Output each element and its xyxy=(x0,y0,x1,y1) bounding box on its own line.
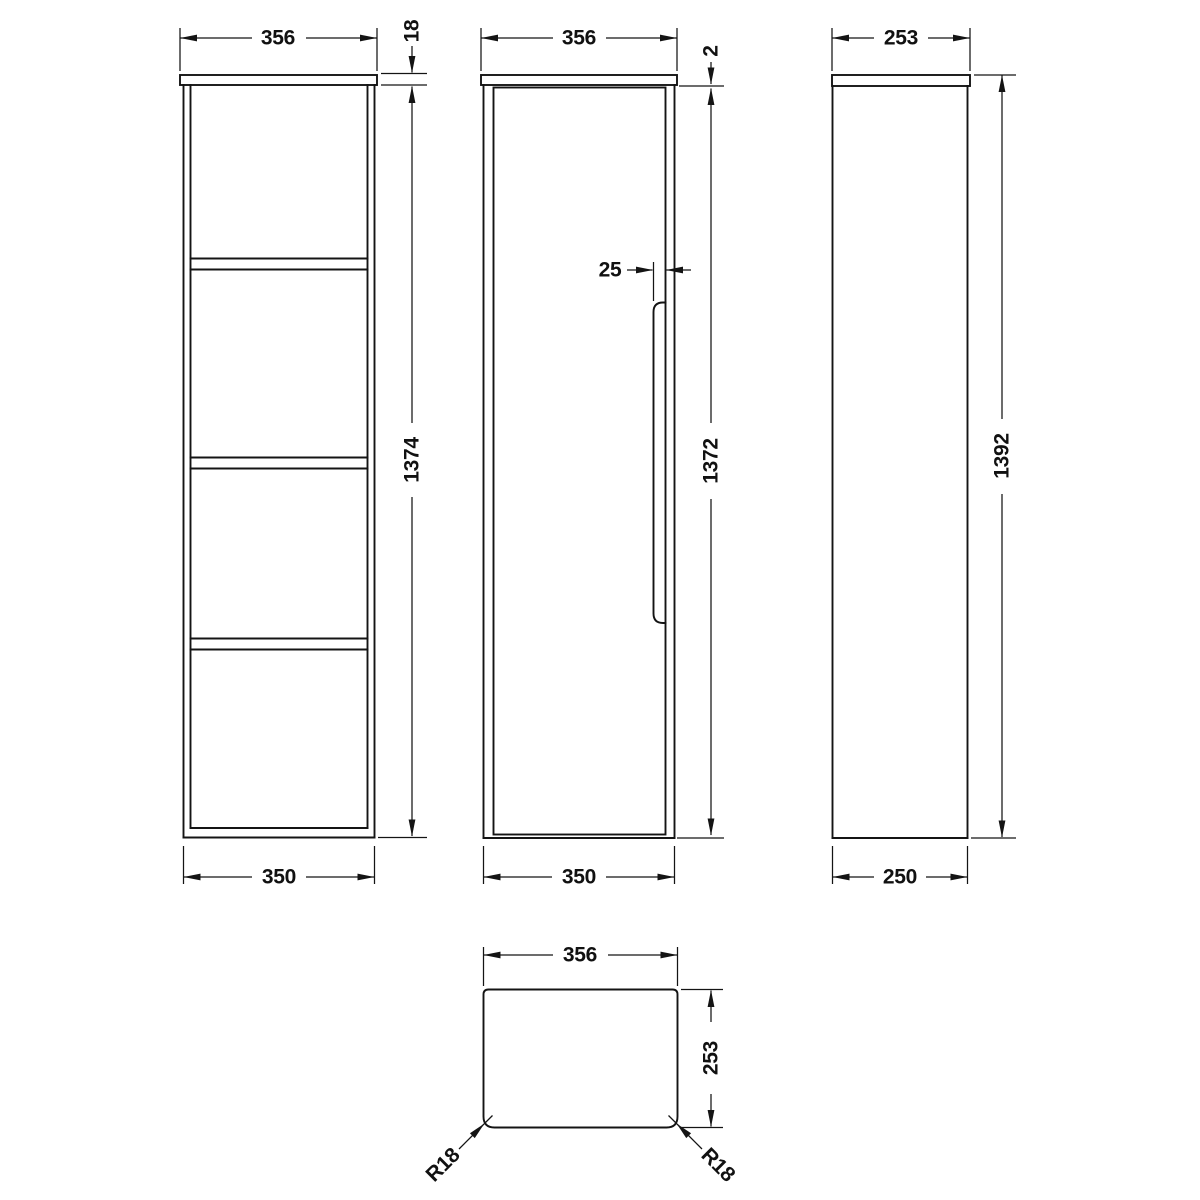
radius-callout-right: R18 xyxy=(669,1116,740,1187)
dim-label-250-side: 250 xyxy=(883,866,917,889)
dim-side-bottom-depth: 250 xyxy=(833,846,968,889)
front-door-top-board xyxy=(481,75,677,85)
front-open-top-board xyxy=(180,75,377,85)
dim-plan-width: 356 xyxy=(484,944,678,987)
front-open-view: 356 18 1374 350 xyxy=(180,19,427,888)
side-view: 253 1392 250 xyxy=(832,27,1016,889)
dim-label-1392: 1392 xyxy=(991,433,1014,479)
dim-label-350-front-door: 350 xyxy=(562,866,596,889)
dim-overall-height: 1392 xyxy=(971,75,1016,838)
dim-front-open-height: 1374 xyxy=(378,87,427,838)
front-door-view: 356 2 1372 25 350 xyxy=(481,27,724,889)
dim-label-356-front-door: 356 xyxy=(562,27,596,50)
plan-outline xyxy=(484,990,678,1128)
dim-front-open-bottom-width: 350 xyxy=(184,846,375,889)
side-top-board xyxy=(832,75,970,86)
dim-label-r18-left: R18 xyxy=(422,1143,465,1186)
technical-drawing: 356 18 1374 350 xyxy=(0,0,1200,1200)
dim-label-350-front-open: 350 xyxy=(262,866,296,889)
dim-front-open-top-width: 356 xyxy=(180,27,377,72)
dim-board-thickness: 18 xyxy=(381,19,427,85)
dim-label-253-side: 253 xyxy=(884,27,918,50)
dim-label-18: 18 xyxy=(401,19,424,42)
dim-label-356-front-open: 356 xyxy=(261,27,295,50)
door-handle-groove xyxy=(654,303,666,624)
plan-view: 356 253 R18 R18 xyxy=(422,944,740,1187)
dim-handle-recess: 25 xyxy=(599,259,691,302)
dim-label-r18-right: R18 xyxy=(697,1144,740,1187)
dim-side-top-depth: 253 xyxy=(832,27,970,72)
radius-callout-left: R18 xyxy=(422,1116,493,1187)
cabinet-door xyxy=(494,88,666,835)
dim-label-356-plan: 356 xyxy=(563,944,597,967)
dim-label-25: 25 xyxy=(599,259,622,282)
dim-plan-depth: 253 xyxy=(681,990,723,1128)
dim-label-253-plan: 253 xyxy=(700,1041,723,1075)
dim-label-1372: 1372 xyxy=(700,438,723,484)
dim-front-door-top-width: 356 xyxy=(481,27,677,72)
dim-door-top-gap: 2 xyxy=(679,45,724,86)
dim-label-2: 2 xyxy=(700,45,723,56)
drawing-canvas: 356 18 1374 350 xyxy=(0,0,1200,1200)
dim-door-height: 1372 xyxy=(677,89,724,839)
dim-label-1374: 1374 xyxy=(401,437,424,483)
dim-front-door-bottom-width: 350 xyxy=(484,846,675,889)
